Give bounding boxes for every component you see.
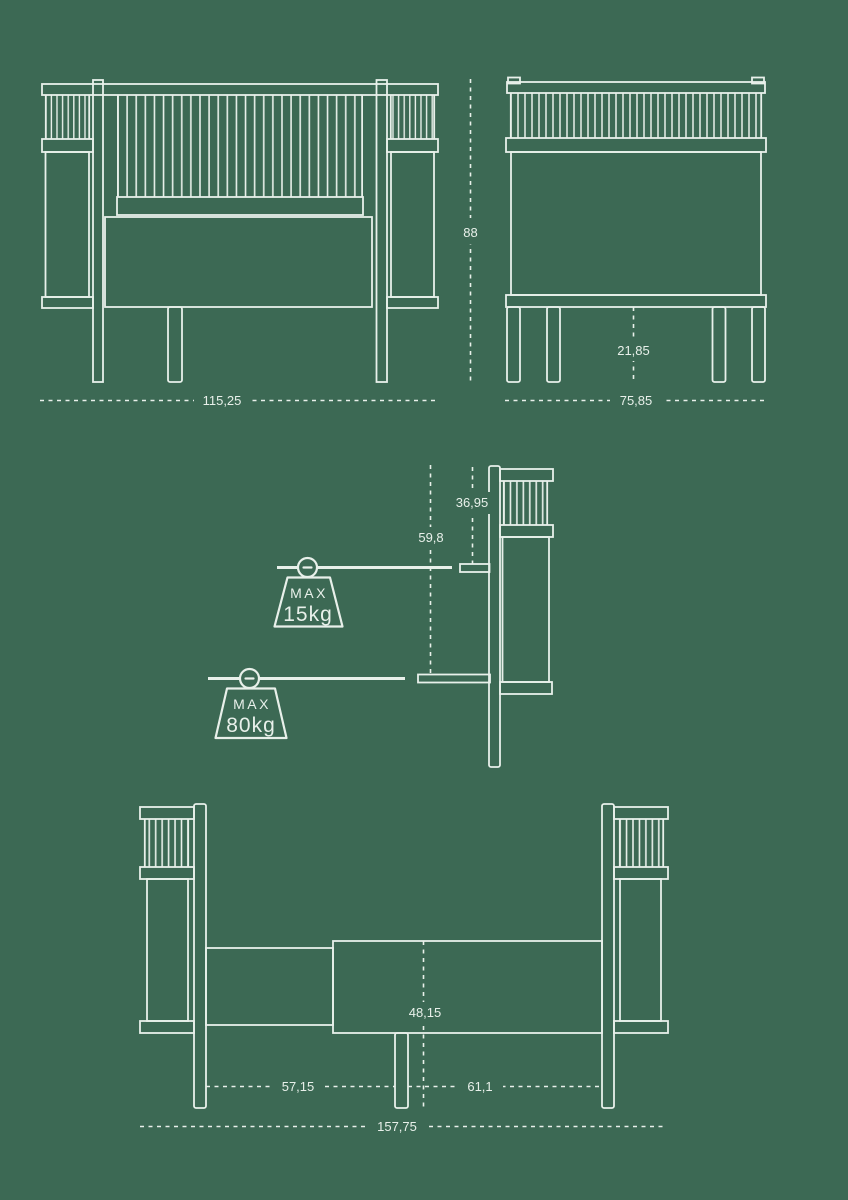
profile-bottom-rail	[500, 682, 552, 694]
side-leg-height-dimension: 21,85	[612, 307, 655, 382]
side-leg-inner-right	[713, 307, 726, 382]
side-bottom-rail	[506, 295, 766, 307]
height-dim-label: 88	[463, 225, 477, 240]
front-right-post	[377, 80, 388, 382]
ext-right-top-bar	[614, 807, 668, 819]
front-slat-wall-bottom-bar	[117, 197, 363, 215]
side-leg-inner-left	[547, 307, 560, 382]
front-right-bottom-rail	[387, 297, 438, 308]
lower-mattress-support	[418, 675, 490, 683]
side-leg-outer-right	[752, 307, 765, 382]
front-left-side-board	[46, 152, 90, 297]
crib-diagram: 88 115,25 21,85 75,85	[0, 0, 848, 1200]
front-top-rail	[42, 84, 438, 95]
front-right-side-board	[391, 152, 434, 297]
front-right-end-panel	[387, 95, 438, 308]
extended-right-end	[602, 804, 668, 1108]
ext-left-top-bar	[140, 807, 194, 819]
extended-left-end	[140, 804, 206, 1108]
max-value: 80kg	[226, 714, 276, 737]
ext-right-mid-rail	[614, 867, 668, 879]
ext-center-leg	[395, 1033, 408, 1108]
ext-mattress-section	[333, 941, 602, 1033]
profile-mid-rail	[500, 525, 553, 537]
side-leg-outer-left	[507, 307, 520, 382]
side-slats	[510, 93, 762, 138]
ext-left-post	[194, 804, 206, 1108]
front-width-dimension: 115,25	[40, 389, 437, 411]
ext-section-dimensions: 57,15 61,1	[206, 1076, 603, 1097]
upper-depth-dim-label: 36,95	[456, 495, 489, 510]
right-section-dim-label: 61,1	[467, 1079, 492, 1094]
profile-view: 59,8 36,95 MAX 15kg MAX 80kg	[208, 465, 553, 767]
leg-height-dim-label: 21,85	[617, 343, 650, 358]
ext-left-bottom-rail	[140, 1021, 194, 1033]
max-value: 15kg	[283, 603, 333, 626]
front-view: 88 115,25	[40, 79, 485, 411]
max-label: MAX	[290, 585, 328, 601]
ext-left-slats	[144, 819, 189, 867]
front-left-bottom-rail	[42, 297, 93, 308]
profile-slats	[503, 481, 548, 525]
ext-left-mid-rail	[140, 867, 194, 879]
total-length-dim-label: 157,75	[377, 1119, 417, 1134]
upper-mattress-support	[460, 564, 490, 572]
side-width-dim-label: 75,85	[620, 393, 653, 408]
front-left-mid-rail	[42, 139, 93, 152]
front-left-slats	[45, 95, 90, 139]
ext-right-bottom-rail	[614, 1021, 668, 1033]
front-base-panel	[105, 217, 372, 307]
side-top-rail	[507, 82, 765, 93]
ext-left-board	[147, 879, 188, 1021]
ext-total-length-dimension: 157,75	[140, 1116, 665, 1137]
front-width-dim-label: 115,25	[203, 393, 242, 408]
lower-depth-dim-label: 59,8	[418, 530, 443, 545]
front-right-slats	[390, 95, 435, 139]
lower-mattress-depth-dimension: 59,8	[412, 465, 450, 674]
ext-right-post	[602, 804, 614, 1108]
front-middle-leg	[168, 307, 182, 382]
front-center-slats	[117, 95, 363, 197]
left-section-dim-label: 57,15	[282, 1079, 315, 1094]
ext-left-bed-section	[206, 948, 333, 1025]
ext-right-slats	[619, 819, 664, 867]
front-left-end-panel	[42, 95, 93, 308]
ext-height-dim-label: 48,15	[409, 1005, 442, 1020]
ext-right-board	[620, 879, 661, 1021]
front-slat-wall	[117, 95, 363, 215]
side-width-dimension: 75,85	[505, 389, 767, 411]
profile-board	[503, 537, 550, 682]
side-board	[511, 152, 761, 295]
extended-view: 48,15 57,15 61,1 157,75	[140, 804, 668, 1137]
front-height-dimension: 88	[456, 79, 485, 382]
side-view: 21,85 75,85	[505, 78, 767, 412]
side-mid-rail	[506, 138, 766, 152]
profile-top-bar	[500, 469, 553, 481]
front-left-post	[93, 80, 103, 382]
front-right-mid-rail	[387, 139, 438, 152]
max-label: MAX	[233, 696, 271, 712]
